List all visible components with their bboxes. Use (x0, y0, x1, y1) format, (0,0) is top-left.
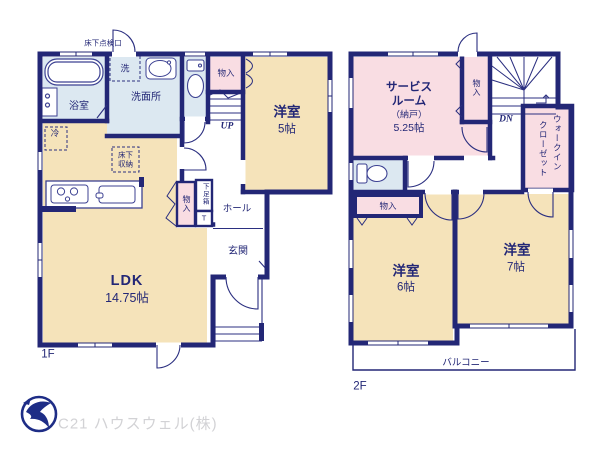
floorplan-canvas (0, 0, 600, 450)
floorplan-page: 床下点検口 洗 浴室 洗面所 物入 UP 洋室 5帖 冷 床下 収納 LDK 1… (0, 0, 600, 450)
toilet-1f-icon (187, 60, 204, 98)
bedroom7-size: 7帖 (507, 262, 525, 274)
bedroom6-size: 6帖 (397, 282, 415, 294)
stairs-1f (208, 90, 243, 120)
stairs-up-label: UP (221, 122, 234, 132)
floor-access-label: 床下点検口 (84, 39, 122, 47)
washer-label: 洗 (120, 65, 129, 74)
company-watermark: C21 ハウスウェル(株) (58, 417, 218, 432)
wic-label-1: ウォークイン (553, 115, 562, 172)
stairs-down-label: DN (499, 115, 513, 125)
closet-service-label: 物入 (472, 79, 480, 97)
ldk-size: 14.75帖 (105, 292, 149, 305)
genkan-label: 玄関 (228, 247, 248, 257)
company-logo (22, 397, 56, 431)
bedroom7-name: 洋室 (504, 243, 531, 257)
washbasin-icon (146, 58, 176, 79)
bedroom6-name: 洋室 (393, 264, 420, 278)
ldk-name: LDK (111, 274, 144, 289)
closet-mid-label: 物入 (182, 195, 190, 213)
fridge-label: 冷 (51, 129, 60, 138)
service-room-name-2: ルーム (392, 96, 426, 108)
closet-top-label: 物入 (217, 69, 234, 78)
floor2-label: 2F (353, 381, 366, 393)
kitchen-icon (46, 181, 142, 208)
hall-label: ホール (223, 204, 252, 214)
service-room-name-1: サービス (386, 82, 432, 94)
balcony-label: バルコニー (442, 358, 489, 368)
service-room-name-3: （納戸） (391, 111, 427, 120)
service-room-size: 5.25帖 (394, 123, 425, 134)
washroom-label: 洗面所 (131, 93, 161, 103)
porch-wall-stub (259, 323, 264, 341)
underfloor-label-1: 床下 (118, 151, 133, 159)
closet6-label: 物入 (379, 202, 396, 211)
underfloor-label-2: 収納 (118, 160, 133, 168)
bedroom5-size: 5帖 (278, 124, 296, 136)
shoebox-label: 下足箱 (201, 183, 208, 206)
bedroom5-name: 洋室 (274, 105, 301, 119)
shoebox-t-label: T (202, 214, 207, 222)
bathroom-label: 浴室 (69, 102, 89, 112)
wic-label-2: クローゼット (539, 121, 548, 178)
toilet-2f-icon (357, 164, 387, 183)
kitchen-wall-stub (40, 206, 76, 212)
floor1-label: 1F (41, 349, 54, 361)
kitchen-wall-stub2 (139, 177, 144, 187)
